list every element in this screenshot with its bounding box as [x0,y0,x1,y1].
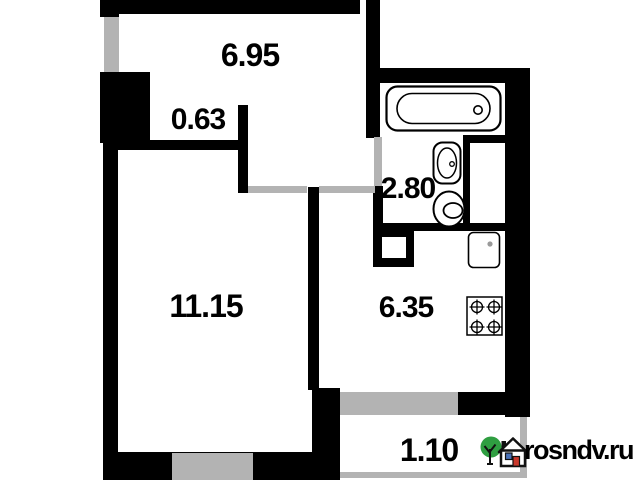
wall-niche-right [238,105,248,193]
wall-niche-bottom [115,140,242,150]
logo-tree-icon [481,437,502,465]
wall-entry-vertical [366,0,380,138]
bathtub [385,85,502,132]
wall-room-kitchen [308,187,319,390]
toilet [432,190,466,228]
floor-plan: 6.95 0.63 2.80 11.15 6.35 1.10 rosndv.ru [0,0,640,480]
wall-top [100,0,360,14]
room-door-opening [248,186,307,193]
stove [466,296,503,336]
wall-left [103,143,118,480]
kitchen-balcony-window [340,392,458,415]
area-label-bathroom: 2.80 [381,174,435,204]
wall-right [505,68,530,417]
area-label-kitchen: 6.35 [379,293,433,323]
kitchen-sink [467,231,501,269]
room-window [172,453,253,480]
kitchen-door-opening [319,186,375,193]
area-label-niche: 0.63 [171,105,225,135]
area-label-room: 11.15 [169,290,242,322]
area-label-balcony: 1.10 [400,434,458,466]
watermark-text: rosndv.ru [524,437,633,464]
entry-door-opening [104,17,119,72]
wall-kitchen-balcony-right [458,392,530,415]
logo-house-icon [499,439,527,467]
vent-shaft-core [382,237,406,258]
wall-left-block [100,72,150,143]
washbasin [432,141,462,185]
wall-top-left-corner [100,0,119,17]
wall-shaft-top [463,135,512,143]
area-label-hallway: 6.95 [221,39,279,71]
balcony-glazing-bottom [340,472,527,478]
